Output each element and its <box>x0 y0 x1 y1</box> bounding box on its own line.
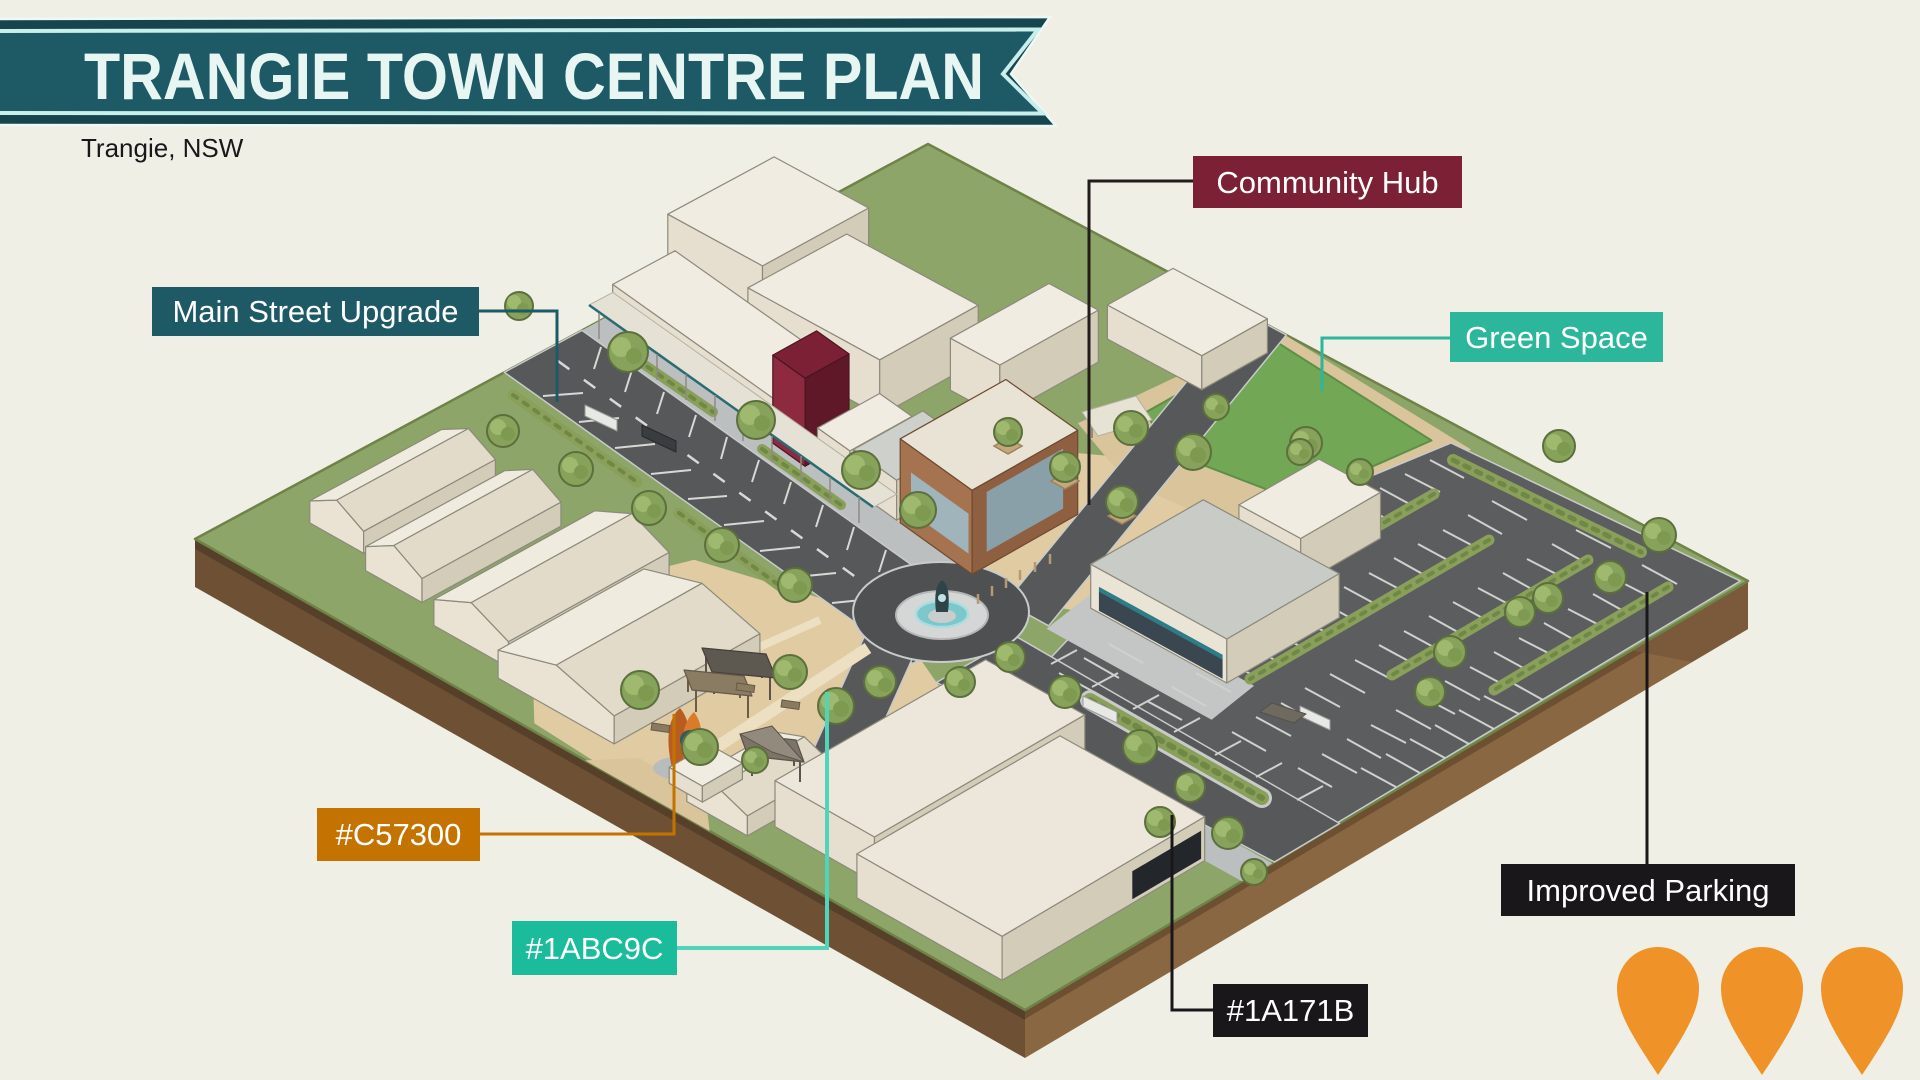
svg-text:Green Space: Green Space <box>1465 320 1648 355</box>
svg-text:Improved Parking: Improved Parking <box>1527 873 1770 908</box>
svg-text:Community Hub: Community Hub <box>1216 165 1438 200</box>
svg-text:#C57300: #C57300 <box>336 817 462 852</box>
svg-text:#1ABC9C: #1ABC9C <box>526 931 664 966</box>
svg-text:Main Street Upgrade: Main Street Upgrade <box>172 294 458 329</box>
svg-text:TRANGIE TOWN CENTRE PLAN: TRANGIE TOWN CENTRE PLAN <box>84 39 984 113</box>
svg-text:#1A171B: #1A171B <box>1227 993 1355 1028</box>
svg-text:Trangie, NSW: Trangie, NSW <box>81 133 244 163</box>
